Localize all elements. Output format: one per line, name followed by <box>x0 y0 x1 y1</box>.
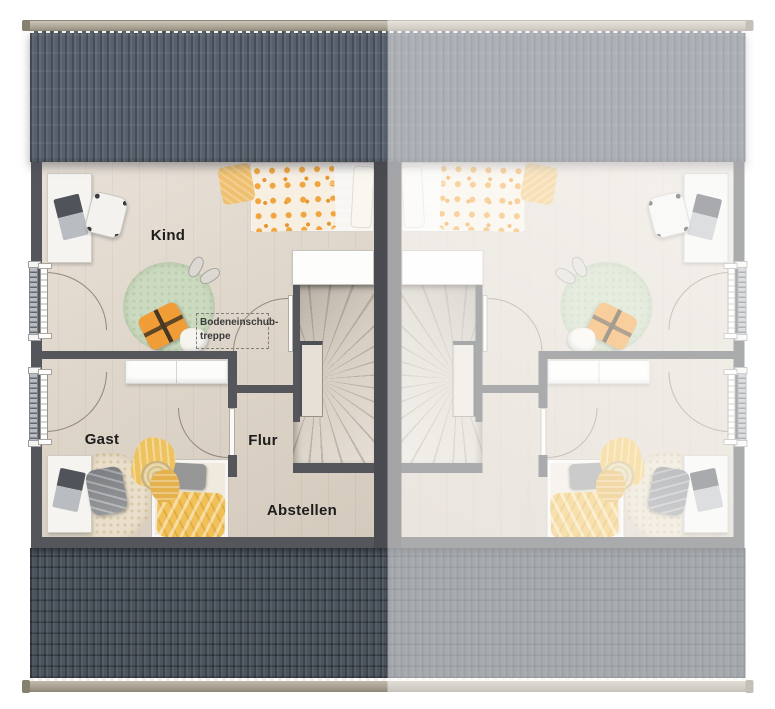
room-label-abstellen: Abstellen <box>260 503 344 518</box>
radiator-icon <box>40 372 48 442</box>
kind-bed-pillow <box>350 165 374 228</box>
window-glazing-icon <box>29 263 38 339</box>
room-label-gast: Gast <box>72 432 132 447</box>
wall-gast-flur-upper <box>228 351 237 408</box>
right-unit-mirrored <box>388 0 775 709</box>
gast-wardrobe <box>125 360 228 384</box>
roof-top <box>30 31 388 162</box>
window-glazing-icon <box>29 369 38 445</box>
exterior-wall-bottom <box>31 537 388 548</box>
wall-stairwell-left <box>293 285 300 422</box>
left-unit: Kind Gast Flur Abstellen Bodeneinschub- … <box>0 0 388 709</box>
kind-floor-pillow <box>217 162 256 205</box>
party-wall <box>374 162 388 548</box>
exterior-wall-left <box>31 162 42 537</box>
kind-window <box>27 260 50 342</box>
kind-bed-duvet <box>250 162 336 233</box>
wall-gast-flur-lower <box>228 455 237 477</box>
wall-kind-gast <box>42 351 233 359</box>
wall-stairwell-bottom <box>293 463 375 473</box>
gutter-end-cap <box>22 20 30 31</box>
gast-window <box>27 366 50 448</box>
wall-flur-top <box>237 385 293 393</box>
attic-hatch-outline: Bodeneinschub- treppe <box>196 313 269 349</box>
radiator-icon <box>40 266 48 336</box>
stair-half-wall-shelf <box>292 250 374 285</box>
floor-plan: Kind Gast Flur Abstellen Bodeneinschub- … <box>0 0 775 709</box>
gast-door-leaf <box>229 408 235 457</box>
mirror-fade-overlay <box>388 0 775 709</box>
attic-hatch-label-line2: treppe <box>200 330 268 344</box>
room-label-flur: Flur <box>237 433 289 448</box>
room-label-kind: Kind <box>138 228 198 243</box>
gutter-bottom <box>24 681 388 692</box>
attic-hatch-label-line1: Bodeneinschub- <box>200 316 268 330</box>
stair-newel <box>297 341 323 417</box>
gutter-top <box>24 20 388 31</box>
gutter-end-cap <box>22 680 30 693</box>
roof-bottom <box>30 548 388 678</box>
gast-armchair <box>84 465 128 517</box>
